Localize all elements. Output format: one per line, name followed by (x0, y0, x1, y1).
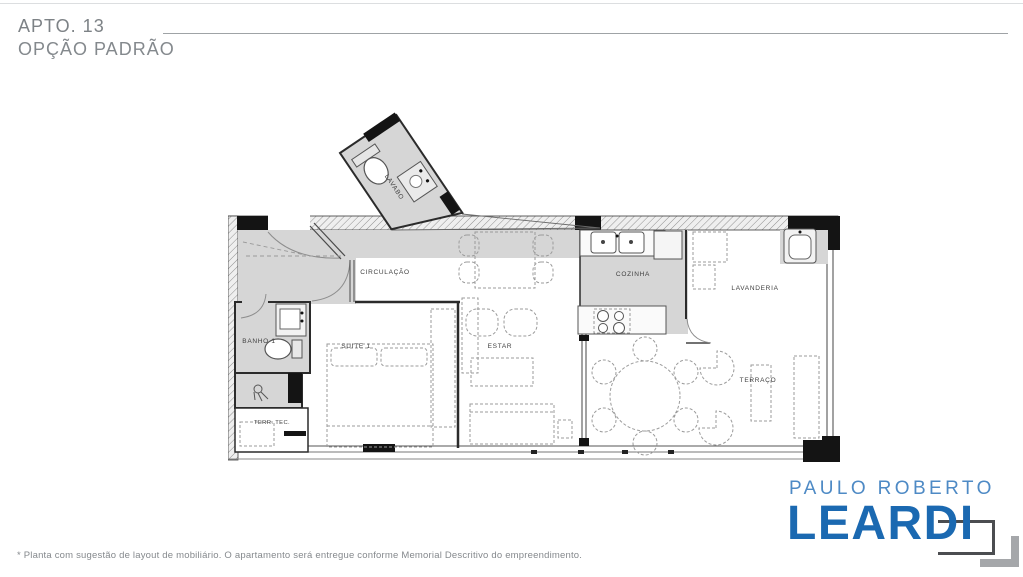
dining-chair (533, 262, 553, 283)
option-subtitle: OPÇÃO PADRÃO (18, 39, 175, 60)
footnote-disclaimer: * Planta com sugestão de layout de mobil… (17, 550, 582, 561)
planter (751, 365, 771, 421)
terrace-chair (633, 431, 657, 455)
washer-icon (693, 232, 727, 289)
pillow (381, 348, 427, 366)
bed (327, 344, 433, 447)
room-label-terraco: TERRAÇO (740, 377, 777, 384)
room-label-terr-tec: TERR. TEC. (254, 420, 290, 426)
header-rule (163, 33, 1008, 34)
brand-name-main: LEARDI (787, 496, 1017, 551)
terrace-chair (633, 337, 657, 361)
side-table (558, 420, 572, 438)
furniture (327, 232, 819, 455)
tech-bar (284, 431, 306, 436)
armchair (466, 309, 498, 336)
terrace-chair (674, 408, 698, 432)
room-label-circulacao: CIRCULAÇÃO (360, 267, 410, 276)
room-label-banho1: BANHO 1 (242, 338, 275, 345)
apartment-title: APTO. 13 (18, 16, 105, 37)
floor-plan: LAVABO (228, 106, 840, 466)
room-label-lavanderia: LAVANDERIA (731, 285, 778, 292)
floor-plan-drawing: LAVABO (228, 106, 840, 466)
terrace-chair (592, 408, 616, 432)
terrace-chair (674, 360, 698, 384)
laundry-door-arc (687, 319, 711, 343)
page-top-divider (0, 3, 1023, 4)
planter (794, 356, 819, 438)
room-label-suite1: SUITE 1 (341, 343, 370, 350)
lounge-chair (699, 411, 733, 445)
wardrobe (431, 309, 455, 427)
sofa (470, 404, 554, 444)
pillow (331, 348, 377, 366)
room-label-estar: ESTAR (488, 343, 513, 350)
room-label-cozinha: COZINHA (616, 271, 650, 278)
coffee-table (471, 358, 533, 386)
lounge-chair (700, 351, 734, 385)
round-table (610, 361, 680, 431)
laundry-tank-icon (784, 229, 816, 263)
armchair (504, 309, 537, 336)
terrace-chair (592, 360, 616, 384)
vanity-sink-icon (276, 304, 306, 336)
dining-chair (459, 262, 479, 283)
fridge-icon (654, 231, 682, 259)
